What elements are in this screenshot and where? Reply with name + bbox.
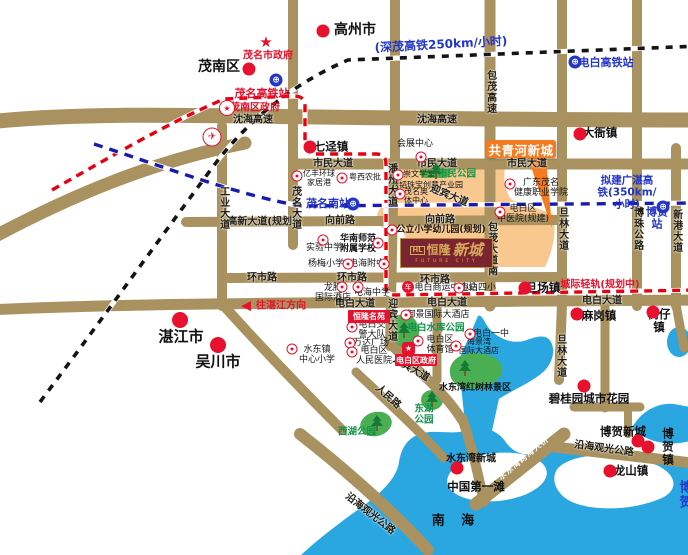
poi-marker-icon	[287, 344, 298, 355]
city-dot-icon	[172, 312, 188, 328]
map-label-poiS-51: 粤西农批	[349, 174, 381, 183]
map-label-road-27: 电白大道	[427, 297, 467, 308]
map-label-poi-62: 电白四小	[460, 283, 496, 293]
town-dot-icon	[243, 63, 256, 76]
town-dot-icon	[451, 462, 464, 475]
logo-name-en: FUTURE CITY	[415, 259, 477, 264]
map-label-roadv-37: 工业大道	[217, 186, 228, 230]
logo-name-cn: 恒隆	[427, 244, 451, 256]
maoming-hsr-station-label: 茂名高铁站	[235, 88, 290, 100]
town-dot-icon	[571, 308, 584, 321]
map-label-road-28: 电白大道	[582, 295, 622, 306]
park-tree-icon	[459, 360, 472, 376]
map-label-town-77: 大衙镇	[583, 127, 618, 140]
town-dot-icon	[642, 441, 655, 454]
poi-marker-icon	[401, 310, 412, 321]
map-label-road-21: 向前路	[325, 215, 355, 226]
government-star-icon: ★	[259, 33, 272, 51]
map-label-road-19: 市民大道	[507, 158, 547, 169]
mangrove-reserve-label: 水东湾红树林景区	[439, 383, 511, 393]
map-label-road-16: 沈海高速	[417, 114, 457, 125]
poi-marker-icon	[387, 225, 398, 236]
dianbai-gov-box: 电白区政府	[395, 354, 437, 366]
maoming-south-station-label: 茂名南站	[306, 198, 350, 210]
poi-marker-icon	[347, 347, 358, 358]
map-label-poi-57: 杨梅小学	[308, 259, 344, 269]
map-label-town-79: 麻岗镇	[582, 310, 617, 323]
poi-marker-icon	[454, 283, 465, 294]
bus-station-icon: 车	[402, 281, 414, 293]
map-label-poiS-49: 茂名奥 体中心	[404, 188, 428, 206]
maoming-gov-label: 茂名市政府	[243, 50, 293, 61]
poi-marker-icon	[379, 259, 390, 270]
maonan-district: 茂南区	[198, 60, 240, 76]
logo-monogram-icon: HL	[410, 246, 424, 255]
railway-station-icon: ⊕	[347, 198, 360, 211]
park-tree-icon	[426, 391, 439, 407]
map-label-road-22: 向前路	[425, 214, 455, 225]
map-label-road-15: 沈海高速	[233, 114, 273, 125]
map-label-poi-66: 电白区 人民医院	[356, 346, 392, 366]
poi-marker-icon	[337, 282, 348, 293]
map-label-road-30: 沿海观光公路	[574, 439, 635, 458]
citizen-park-label: 市民公园	[438, 170, 476, 181]
town-dot-icon	[604, 465, 617, 478]
park-tree-icon	[371, 415, 384, 431]
map-label-town-75: 中国第一滩	[447, 481, 505, 494]
town-dot-icon	[304, 141, 317, 154]
shuidongwan-bridge-label: 水东湾跨海大桥	[497, 435, 551, 482]
town-dot-icon	[647, 306, 660, 319]
park-tree-icon	[398, 322, 411, 338]
railway-station-icon: ⊕	[569, 56, 582, 69]
map-label-poi-63: 御景国际大酒店	[406, 310, 469, 320]
wuchuan-city: 吴川市	[195, 354, 240, 371]
map-label-roadv-39: 旦林大道	[556, 207, 567, 251]
map-label-road-23: 环市路	[247, 272, 277, 283]
map-label-road-31: 人民路	[373, 383, 403, 411]
intercity-rail-label: 城际轻轨(规划中)	[560, 279, 639, 290]
to-zhanjiang-label: 往湛江方向	[256, 300, 306, 311]
gaozhou-city: 高州市	[334, 23, 376, 39]
labels-layer: 高州市茂南区湛江市吴川市南 海(深茂高铁250km/小时)拟建广湛高铁(350k…	[0, 0, 688, 555]
hengleong-mingyuan-box: 恒隆名苑	[348, 310, 390, 323]
poi-marker-icon	[343, 259, 354, 270]
map-label-roadv-38: 茂名大道	[289, 186, 300, 230]
map-label-road-29: 沿海观光公路	[343, 491, 397, 537]
city-dot-icon	[210, 337, 226, 353]
town-dot-icon	[574, 128, 587, 141]
poi-marker-icon	[465, 329, 476, 340]
town-dot-icon	[578, 380, 591, 393]
airport-icon: ✈	[203, 128, 222, 147]
map-label-poi-69: 电白区 体育馆	[426, 335, 453, 355]
railway-station-icon: ⊕	[657, 201, 670, 214]
logo-name-cn-stylized: 新城	[453, 243, 483, 258]
gongqinghe-callout: 共青河新城	[486, 140, 556, 158]
map-label-poib-54: 公立小学幼儿园(规划)	[396, 225, 485, 235]
maonan-gov-label: 茂南区政府	[230, 102, 280, 113]
map-label-road-20: 高新大道(规划)	[227, 216, 296, 227]
location-map: 高州市茂南区湛江市吴川市南 海(深茂高铁250km/小时)拟建广湛高铁(350k…	[0, 0, 688, 555]
poi-marker-icon	[347, 322, 358, 333]
map-label-roadv-41: 博珠公路	[631, 207, 642, 251]
map-label-town-83: 龙山镇	[614, 465, 649, 478]
poi-marker-icon	[395, 189, 406, 200]
district-gov-star-icon: ★	[219, 100, 235, 116]
east-lake-park-label: 东湖 公园	[414, 404, 433, 425]
park-tree-icon	[430, 163, 443, 179]
map-label-poi-67: 水东镇 中心小学	[299, 345, 335, 365]
direction-arrow-icon: ◀	[241, 299, 251, 314]
map-label-roadv-42: 新港大道	[670, 209, 681, 253]
map-label-roadv-40: 旦林大道	[554, 334, 565, 378]
poi-marker-icon	[495, 207, 506, 218]
map-label-town-85: 碧桂园城市花园	[549, 393, 630, 406]
zhanjiang-city: 湛江市	[158, 329, 203, 346]
map-label-poi-45: 会展中心	[397, 139, 433, 149]
town-dot-icon	[519, 282, 532, 295]
map-label-roadv-34: 包茂高速	[484, 70, 495, 114]
poi-marker-icon	[318, 235, 329, 246]
railway-station-icon: ⊕	[270, 74, 283, 87]
poi-marker-icon	[451, 341, 462, 352]
reservoir-park-label: 电白水库公园	[407, 324, 464, 335]
poi-marker-icon	[292, 171, 303, 182]
poi-marker-icon	[416, 152, 427, 163]
dianbai-hsr-station-label: 电白高铁站	[579, 57, 634, 69]
map-label-poib-56: 华南师范 附属学校	[340, 234, 376, 254]
map-label-poiS-50: 亿丰环球 家居港	[303, 170, 335, 188]
map-label-road-17: 市民大道	[313, 158, 353, 169]
bohe-edge-label: 博贺	[679, 481, 688, 510]
map-label-town-82: 博贺镇	[658, 428, 678, 467]
poi-marker-icon	[373, 238, 384, 249]
map-label-poiS-71: 海景湾 国际大酒店	[459, 338, 499, 356]
map-label-poi-52: 广东茂名 健康职业学院	[514, 178, 568, 198]
hengleong-newcity-logo: HL 恒隆 新城 FUTURE CITY	[400, 238, 493, 268]
map-label-town-76: 七迳镇	[314, 141, 349, 154]
poi-marker-icon	[505, 179, 516, 190]
poi-marker-icon	[337, 173, 348, 184]
south-china-sea: 南 海	[432, 515, 481, 530]
town-dot-icon	[317, 25, 330, 38]
poi-marker-icon	[353, 282, 364, 293]
shenmao-hsr-label: (深茂高铁250km/小时)	[374, 35, 507, 55]
poi-marker-icon	[393, 170, 404, 181]
